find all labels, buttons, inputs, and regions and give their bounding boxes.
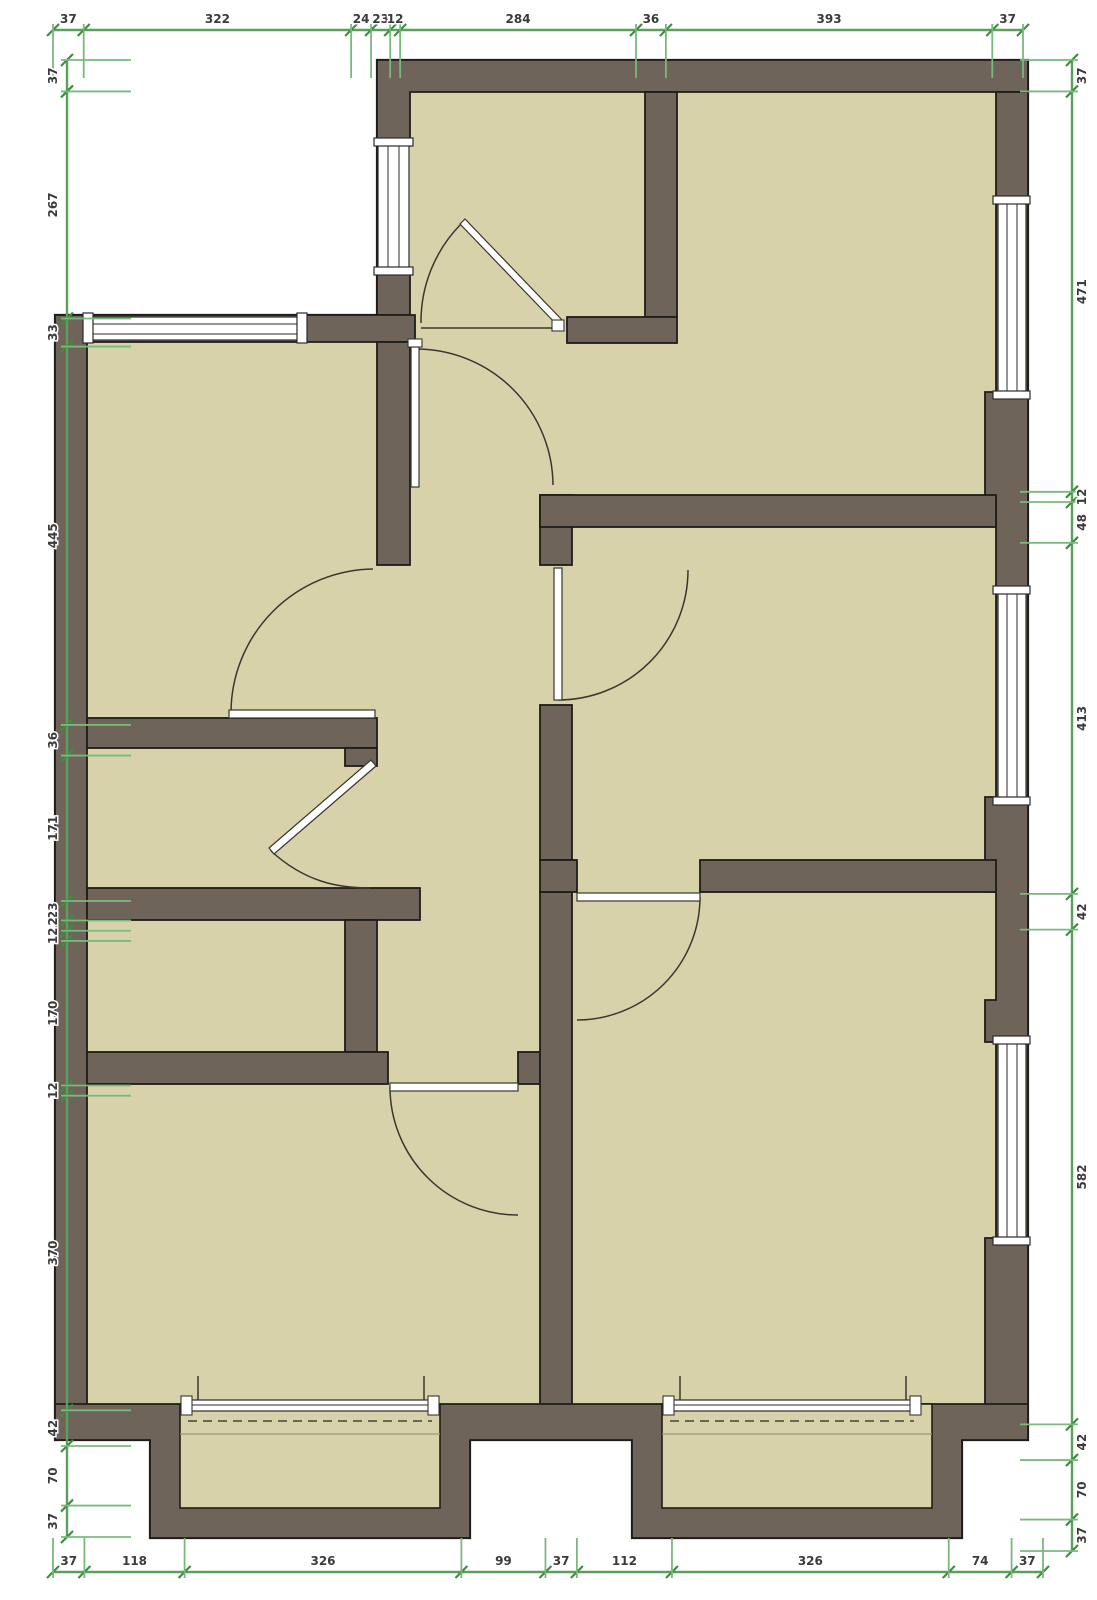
wall-small-room1-bottom bbox=[87, 888, 420, 920]
wall-center-lower bbox=[540, 892, 572, 1408]
dimension-label: 171 bbox=[46, 816, 60, 841]
dimension-label: 112 bbox=[612, 1554, 637, 1568]
wall-small-room2-east bbox=[345, 920, 377, 1052]
dimension-label: 12 bbox=[46, 1082, 60, 1099]
floor-plan-canvas: 3732224231228436393373711832699371123267… bbox=[0, 0, 1097, 1600]
dimension-label: 284 bbox=[506, 12, 531, 26]
dimension-label: 48 bbox=[1075, 514, 1089, 531]
dimension-label: 33 bbox=[46, 324, 60, 341]
window-left-wing-top bbox=[83, 313, 307, 343]
window-upper-left bbox=[374, 138, 413, 275]
dimension-label: 37 bbox=[46, 1513, 60, 1530]
dimension-label: 322 bbox=[205, 12, 230, 26]
floor-plan-page: 3732224231228436393373711832699371123267… bbox=[0, 0, 1097, 1600]
dimension-label: 118 bbox=[122, 1554, 147, 1568]
dimension-label: 413 bbox=[1075, 706, 1089, 731]
wall-top-room-divider bbox=[645, 92, 677, 317]
dimension-chain-bottom: 3711832699371123267437 bbox=[47, 1538, 1049, 1578]
wall-center-mid bbox=[540, 705, 572, 860]
dimension-label: 42 bbox=[1075, 1434, 1089, 1451]
dimension-label: 326 bbox=[798, 1554, 823, 1568]
dimension-label: 37 bbox=[60, 1554, 77, 1568]
wall-hall-west-upper bbox=[377, 342, 410, 565]
dimension-label: 370 bbox=[46, 1240, 60, 1265]
dimension-label: 42 bbox=[46, 1420, 60, 1437]
wall-top-room-divider-foot bbox=[567, 317, 677, 343]
window-right-middle bbox=[993, 586, 1030, 805]
dimension-label: 24 bbox=[353, 12, 370, 26]
wall-midright-top bbox=[540, 495, 996, 527]
dimension-label: 37 bbox=[553, 1554, 570, 1568]
dimension-label: 471 bbox=[1075, 279, 1089, 304]
dimension-label: 326 bbox=[310, 1554, 335, 1568]
dimension-label: 445 bbox=[46, 523, 60, 548]
dimension-label: 582 bbox=[1075, 1164, 1089, 1189]
dimension-label: 393 bbox=[817, 12, 842, 26]
dimension-label: 23 bbox=[46, 902, 60, 919]
dimension-label: 99 bbox=[495, 1554, 512, 1568]
window-right-bottom bbox=[993, 1036, 1030, 1245]
dimension-label: 12 bbox=[387, 12, 404, 26]
dimension-label: 42 bbox=[1075, 903, 1089, 920]
dimension-label: 12 bbox=[46, 927, 60, 944]
wall-hall-bottom-right bbox=[518, 1052, 540, 1084]
wall-midright-bottom-b bbox=[700, 860, 996, 892]
dimension-label: 37 bbox=[60, 12, 77, 26]
dimension-label: 170 bbox=[46, 1001, 60, 1026]
dimension-label: 36 bbox=[46, 732, 60, 749]
wall-left-room-bottom bbox=[87, 718, 377, 748]
dimension-label: 74 bbox=[972, 1554, 989, 1568]
dimension-label: 37 bbox=[1075, 1527, 1089, 1544]
bay-left-floor bbox=[180, 1404, 440, 1508]
dimension-label: 37 bbox=[46, 67, 60, 84]
bay-right-floor bbox=[662, 1404, 932, 1508]
dimension-label: 37 bbox=[999, 12, 1016, 26]
dimension-label: 37 bbox=[1019, 1554, 1036, 1568]
dimension-label: 36 bbox=[643, 12, 660, 26]
wall-hall-bottom-left bbox=[87, 1052, 388, 1084]
window-right-top bbox=[993, 196, 1030, 399]
dimension-label: 37 bbox=[1075, 67, 1089, 84]
dimension-label: 70 bbox=[1075, 1481, 1089, 1498]
dimension-label: 267 bbox=[46, 192, 60, 217]
dimension-label: 70 bbox=[46, 1467, 60, 1484]
wall-midright-bottom-a bbox=[540, 860, 577, 892]
dimension-label: 12 bbox=[1075, 489, 1089, 506]
